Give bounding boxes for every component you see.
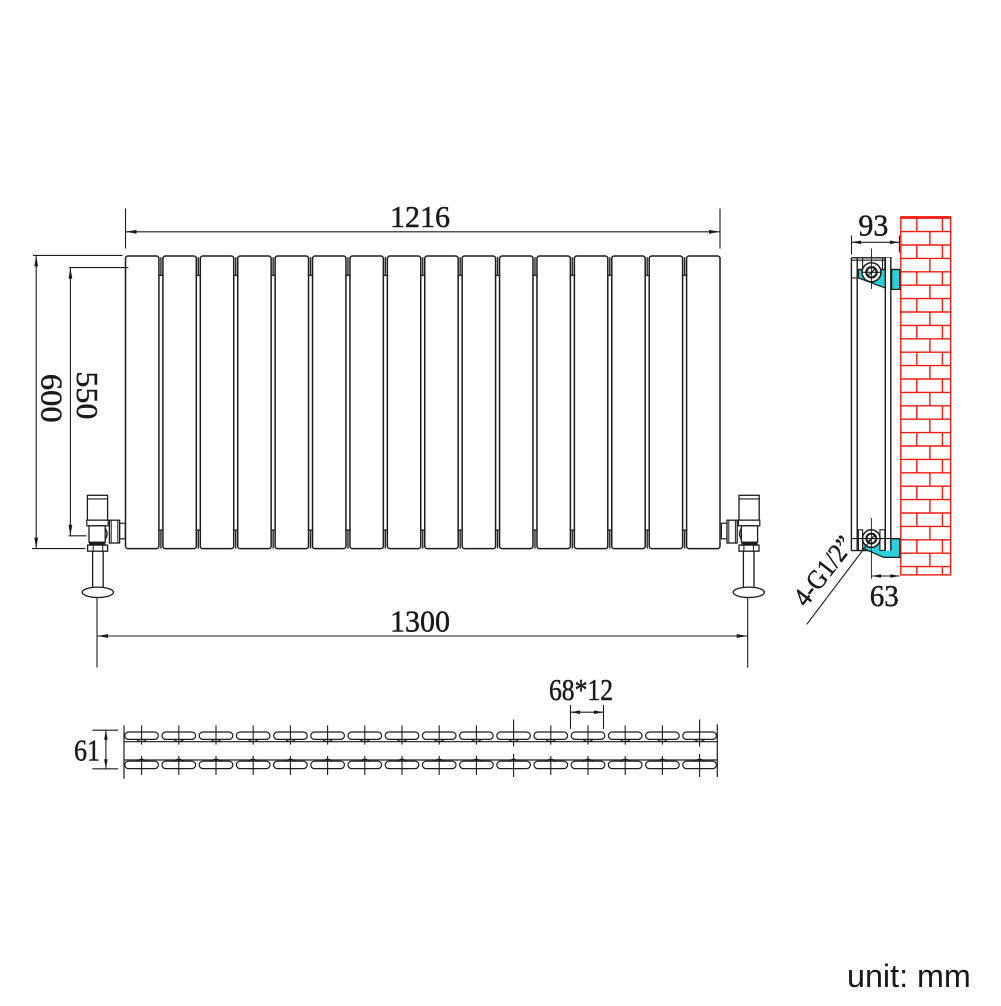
svg-text:1216: 1216 (390, 199, 450, 234)
svg-text:unit: mm: unit: mm (847, 958, 971, 994)
svg-text:61: 61 (74, 732, 100, 767)
svg-text:93: 93 (858, 207, 888, 242)
svg-text:1300: 1300 (390, 604, 450, 639)
svg-text:550: 550 (70, 371, 105, 419)
svg-text:600: 600 (34, 374, 69, 423)
svg-text:68*12: 68*12 (549, 672, 613, 707)
svg-text:63: 63 (870, 578, 899, 613)
